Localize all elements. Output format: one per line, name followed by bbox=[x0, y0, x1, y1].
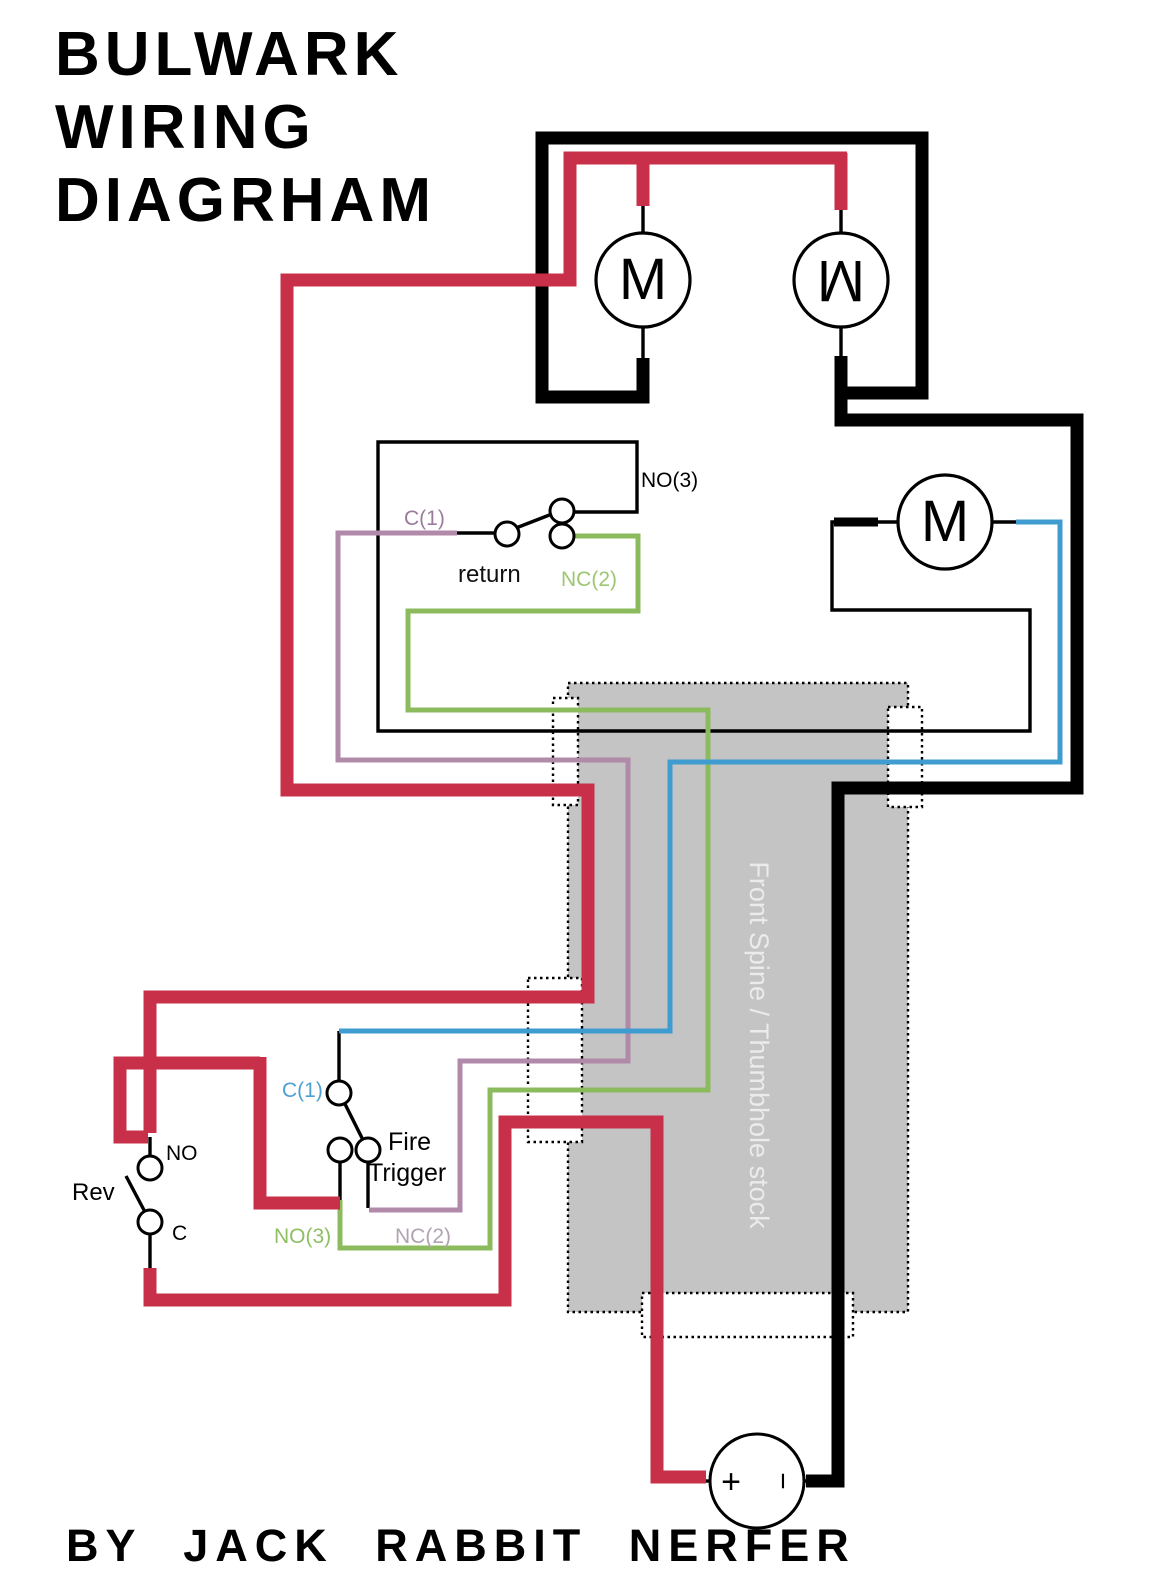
stock-region: Front Spine / Thumbhole stock bbox=[528, 683, 922, 1337]
return-switch-label: return bbox=[458, 561, 521, 588]
wiring-diagram-page: BULWARK WIRING DIAGRHAM Front Spine / Th… bbox=[0, 0, 1163, 1581]
rev-switch: NO Rev C bbox=[72, 1142, 198, 1245]
trigger-label-line1: Fire bbox=[388, 1128, 431, 1156]
motor1-label: M bbox=[619, 247, 667, 312]
battery: + − bbox=[710, 1434, 804, 1528]
rev-switch-label: Rev bbox=[72, 1179, 115, 1206]
return-c-label: C(1) bbox=[404, 507, 445, 530]
motors: M M M bbox=[596, 233, 992, 569]
author-credit: BY JACK RABBIT NERFER bbox=[66, 1520, 856, 1572]
return-no-terminal bbox=[550, 499, 574, 523]
trigger-label-line2: Trigger bbox=[368, 1159, 446, 1187]
trigger-no-terminal bbox=[328, 1138, 352, 1162]
return-nc-terminal bbox=[550, 524, 574, 548]
rev-c-label: C bbox=[172, 1222, 187, 1245]
motor3-label: M bbox=[921, 489, 969, 554]
return-nc-label: NC(2) bbox=[561, 568, 617, 591]
return-c-terminal bbox=[495, 522, 519, 546]
stock-region-label: Front Spine / Thumbhole stock bbox=[744, 861, 774, 1229]
motor2-label-inverted: M bbox=[817, 248, 865, 313]
trigger-switch-arm bbox=[345, 1104, 363, 1140]
rev-switch-arm bbox=[126, 1176, 145, 1212]
rev-no-label: NO bbox=[166, 1142, 198, 1165]
rev-no-terminal bbox=[138, 1156, 162, 1180]
diagram-drawing: Front Spine / Thumbhole stock bbox=[0, 0, 1163, 1581]
trigger-nc-label: NC(2) bbox=[395, 1225, 451, 1248]
battery-minus-symbol: − bbox=[766, 1472, 799, 1490]
return-switch: NO(3) C(1) return NC(2) bbox=[404, 469, 698, 591]
red-wire-rev-loop bbox=[120, 1063, 260, 1137]
fire-trigger-switch: C(1) Fire Trigger NO(3) NC(2) bbox=[274, 1079, 451, 1248]
return-switch-arm bbox=[516, 514, 552, 528]
rev-c-terminal bbox=[138, 1210, 162, 1234]
trigger-c-terminal bbox=[327, 1081, 351, 1105]
battery-plus-symbol: + bbox=[721, 1463, 741, 1501]
stock-passthrough-bottom bbox=[642, 1293, 853, 1337]
return-no-label: NO(3) bbox=[641, 469, 698, 492]
stock-region-body bbox=[568, 683, 908, 1312]
trigger-no-label: NO(3) bbox=[274, 1225, 331, 1248]
trigger-c-label: C(1) bbox=[282, 1079, 323, 1102]
